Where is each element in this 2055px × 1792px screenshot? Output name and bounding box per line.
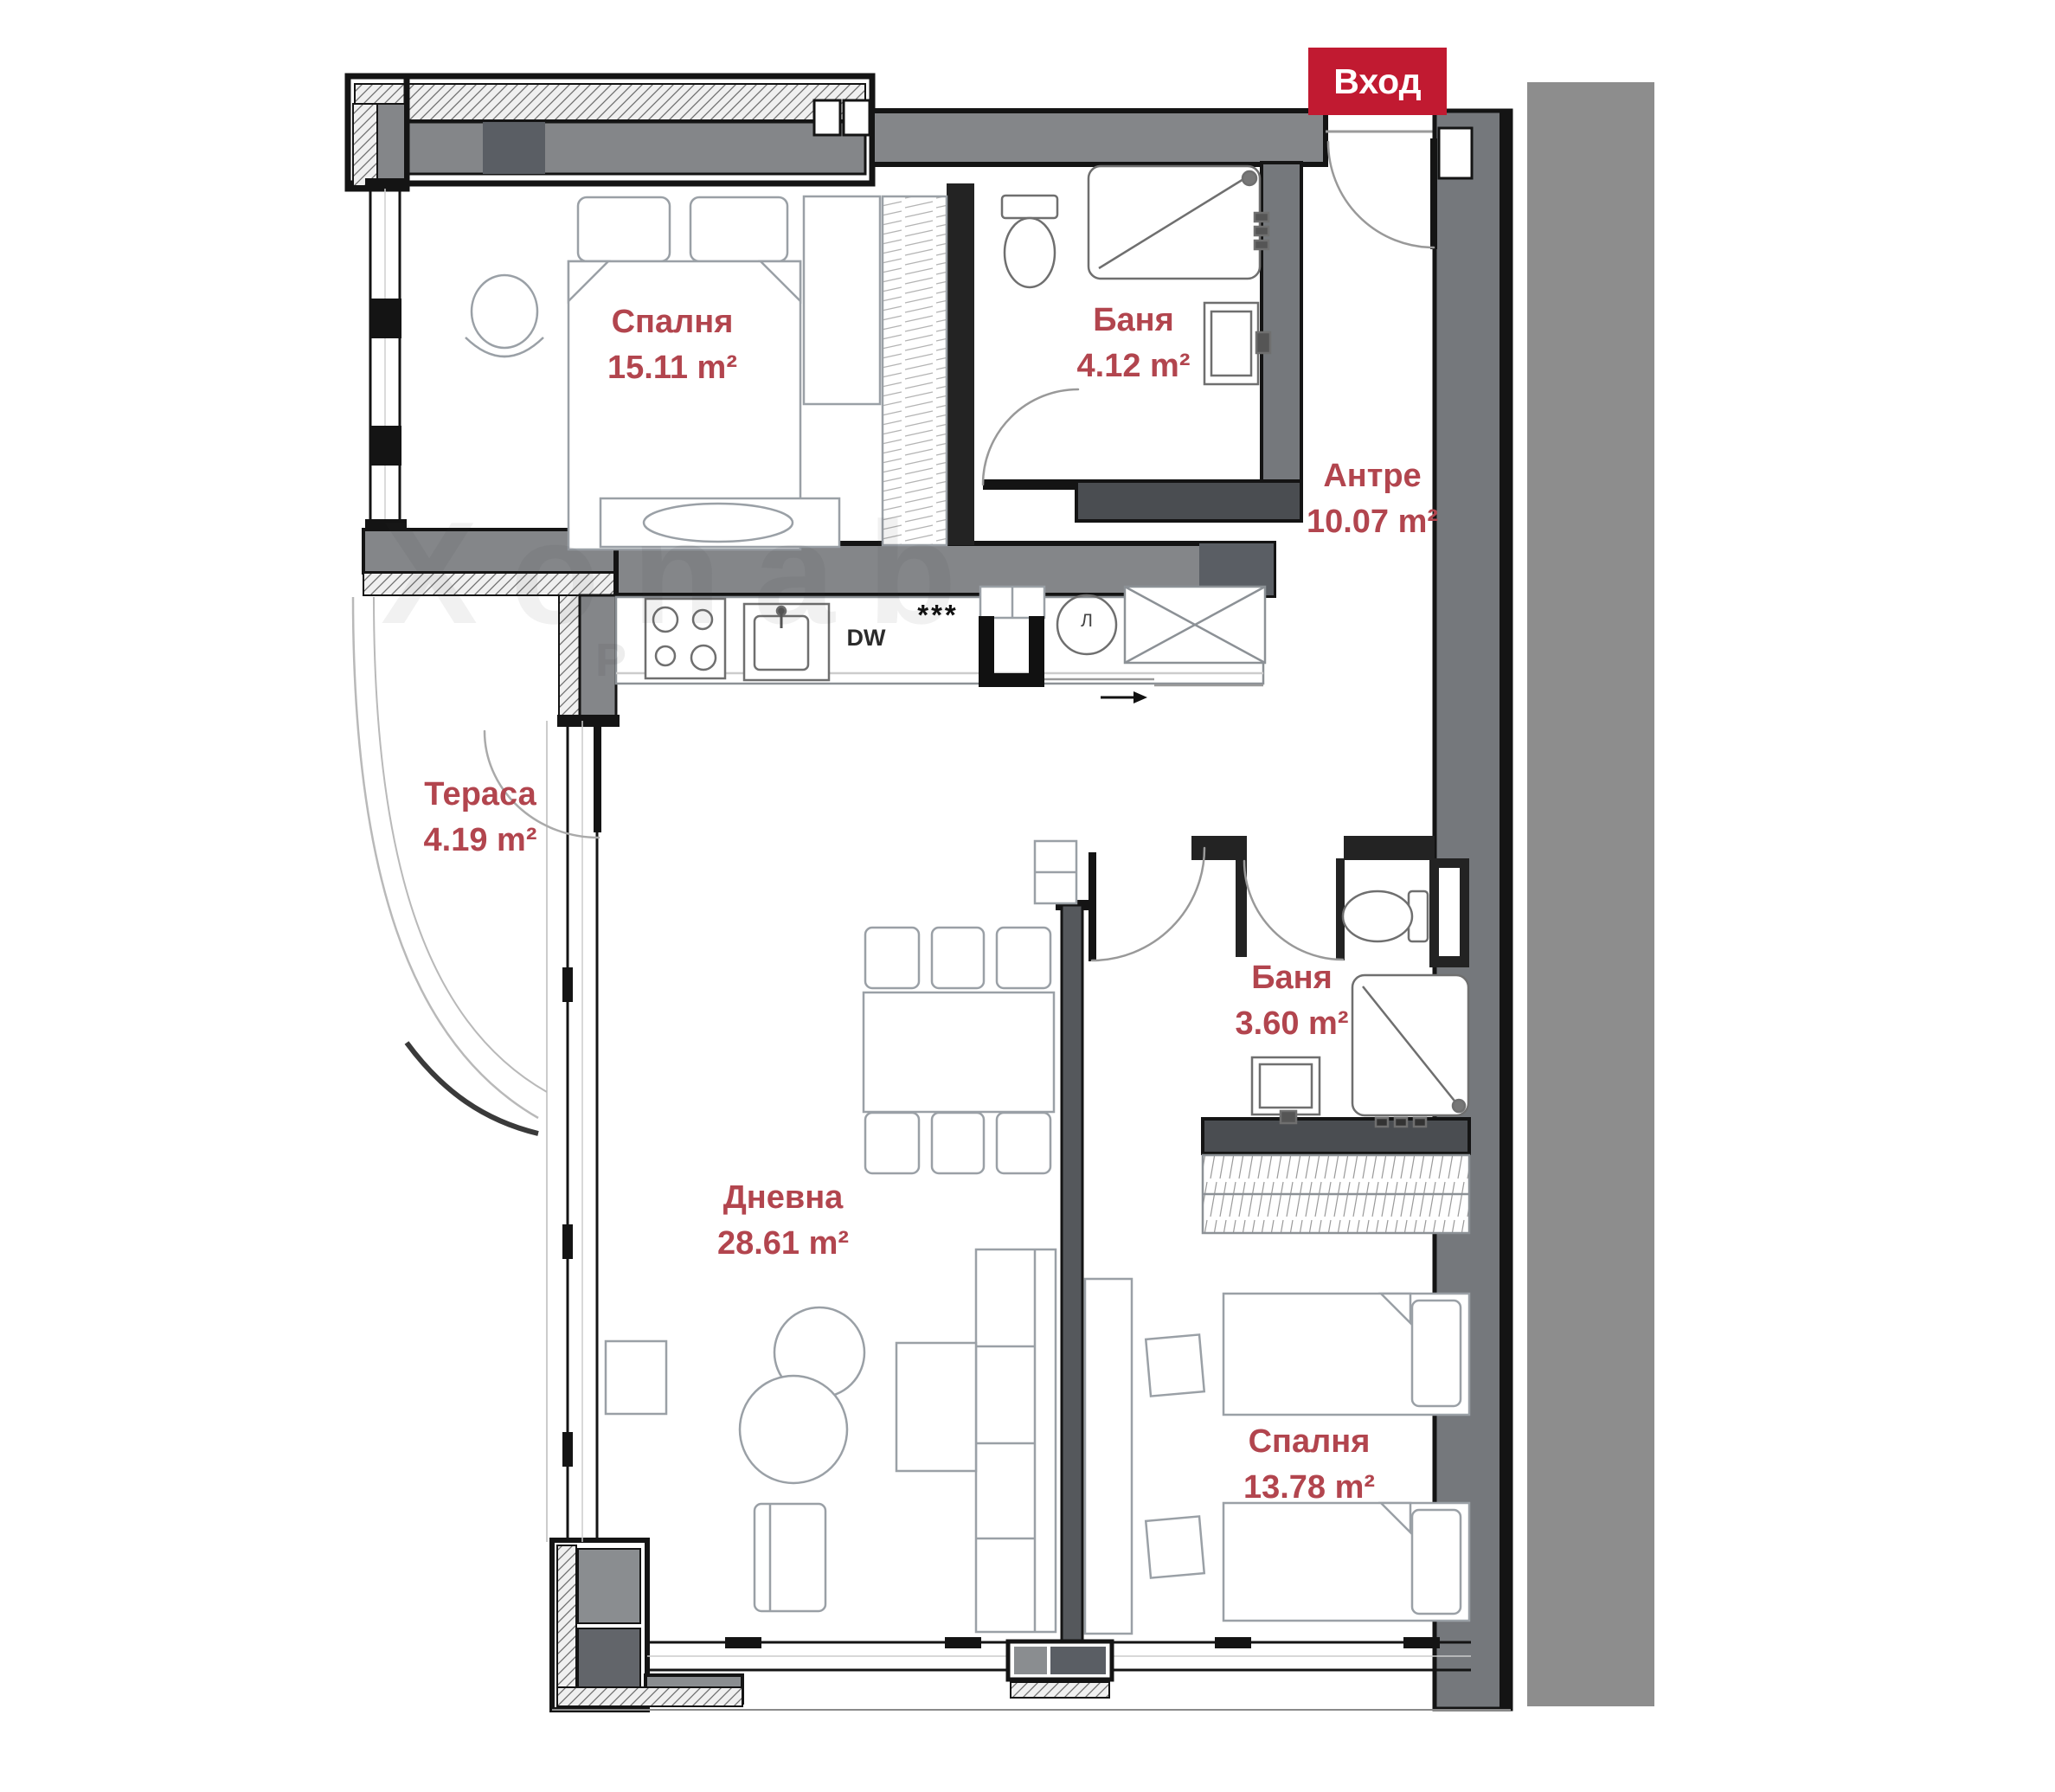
washer-label: Л (1081, 611, 1093, 632)
room-area: 13.78 m² (1243, 1465, 1375, 1511)
sofa (896, 1249, 1056, 1632)
watermark-subtext: P (595, 633, 626, 687)
floor-plan-drawing (0, 0, 2055, 1792)
room-area: 4.12 m² (1077, 344, 1191, 389)
room-name: Тераса (424, 772, 537, 818)
room-name: Спалня (1243, 1419, 1375, 1465)
bedroom2-nightstands (1146, 1334, 1204, 1577)
watermark-text: Хonab (381, 490, 989, 657)
bathroom1-shower (1089, 166, 1268, 279)
room-name: Спалня (607, 299, 737, 345)
entrance-door (1328, 138, 1437, 249)
bedroom2-bed-a (1223, 1294, 1469, 1415)
room-area: 28.61 m² (717, 1221, 849, 1267)
room-label-bathroom2: Баня 3.60 m² (1236, 955, 1349, 1047)
room-name: Антре (1307, 453, 1438, 499)
bathroom1-toilet (1002, 196, 1057, 287)
freezer-label: *** (917, 599, 959, 632)
bathroom2-toilet (1343, 891, 1428, 941)
tv-stand (606, 1341, 666, 1414)
bathroom2-shower (1352, 975, 1468, 1127)
floor-plan: Хonab P Вход Спалня 15.11 m² Баня 4.12 m… (0, 0, 2055, 1792)
bedroom1-chair (466, 275, 543, 356)
armchair (755, 1504, 825, 1611)
room-label-hallway: Антре 10.07 m² (1307, 453, 1438, 545)
bedroom2-hall-door (1092, 848, 1204, 960)
bedroom2-wardrobe (1203, 1155, 1469, 1233)
room-area: 3.60 m² (1236, 1001, 1349, 1047)
room-label-terrace: Тераса 4.19 m² (424, 772, 537, 864)
room-label-bedroom1: Спалня 15.11 m² (607, 299, 737, 391)
room-label-bathroom1: Баня 4.12 m² (1077, 298, 1191, 389)
entrance-badge: Вход (1308, 48, 1447, 115)
terrace-railing (353, 597, 547, 1134)
bedroom2-desk (1085, 1279, 1132, 1634)
room-name: Баня (1077, 298, 1191, 344)
room-name: Дневна (717, 1175, 849, 1221)
direction-arrow (1101, 691, 1147, 703)
bathroom2-door (1244, 858, 1345, 960)
room-area: 10.07 m² (1307, 499, 1438, 545)
room-area: 15.11 m² (607, 345, 737, 391)
hall-shelf (1035, 841, 1076, 903)
room-label-living: Дневна 28.61 m² (717, 1175, 849, 1267)
dishwasher-label: DW (847, 625, 886, 652)
bathroom1-door (983, 389, 1078, 490)
room-area: 4.19 m² (424, 818, 537, 864)
dining-table (864, 992, 1054, 1112)
room-name: Баня (1236, 955, 1349, 1001)
room-label-bedroom2: Спалня 13.78 m² (1243, 1419, 1375, 1511)
bathroom2-sink (1252, 1057, 1320, 1123)
kitchen-fridge-niche (1125, 587, 1265, 663)
coffee-tables (740, 1307, 864, 1483)
bedroom2-bed-b (1223, 1503, 1469, 1621)
kitchen-cabinet (980, 587, 1044, 618)
adjacent-building-band (1527, 82, 1654, 1706)
